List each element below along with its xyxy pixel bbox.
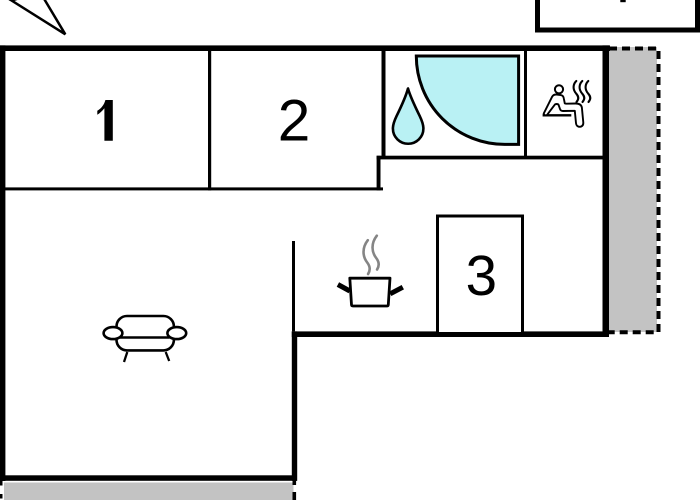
svg-text:2: 2 [278,89,311,154]
svg-text:3: 3 [466,244,497,307]
